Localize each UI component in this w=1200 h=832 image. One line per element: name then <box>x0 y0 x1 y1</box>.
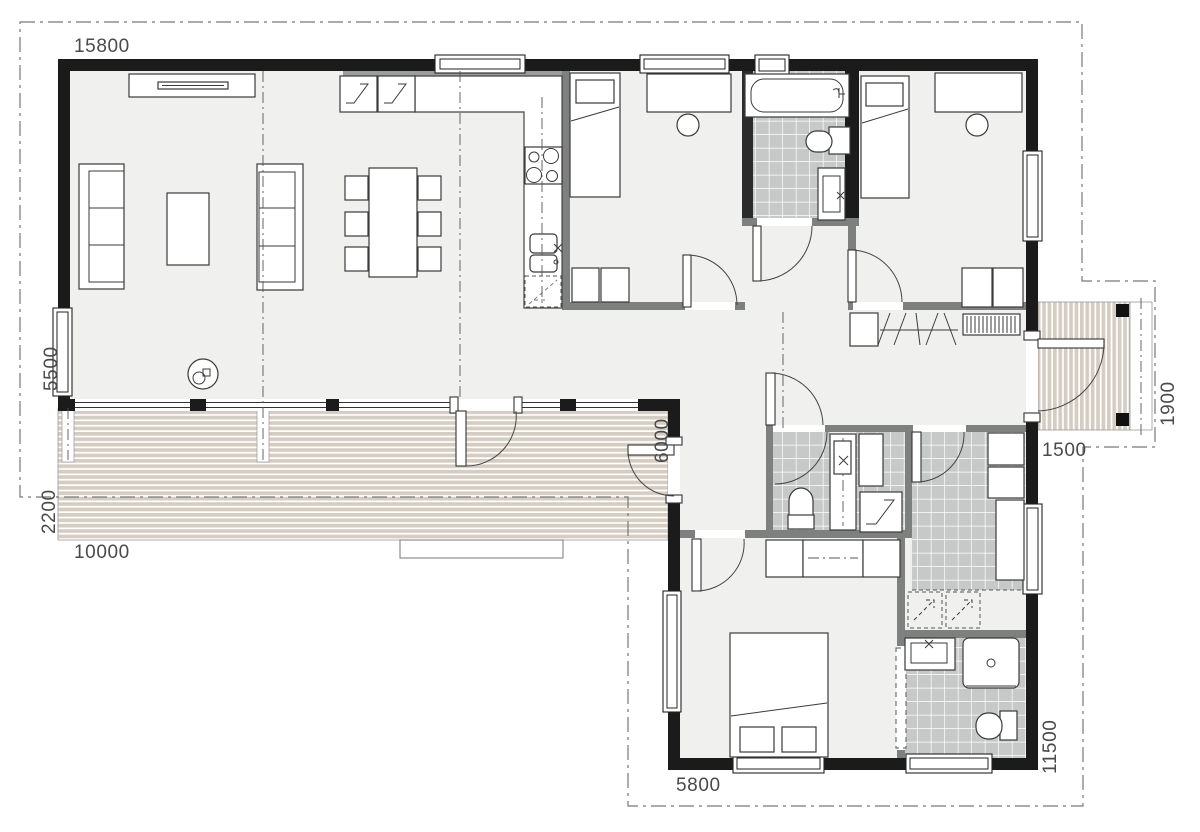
bed-2-pillow <box>866 83 903 106</box>
dim-left-height: 5500 <box>41 346 62 391</box>
hall-wardrobes <box>340 76 415 112</box>
dining-chair <box>418 247 441 271</box>
wardrobe-3 <box>863 540 900 577</box>
stove <box>525 147 562 184</box>
window-master-west <box>663 591 681 712</box>
shower <box>963 638 1019 688</box>
chair-1 <box>677 114 699 136</box>
window-south-2 <box>206 399 326 411</box>
toilet-bath2-bowl <box>976 713 1002 739</box>
wall-bath2-north <box>897 630 1026 638</box>
wall-wc-west <box>766 425 773 537</box>
tech-cabinet <box>859 434 883 486</box>
sofa-middle <box>257 164 303 290</box>
window-bed2-east <box>1023 151 1042 241</box>
dim-terrace-depth: 2200 <box>39 489 60 534</box>
coffee-table <box>167 193 209 265</box>
window-utility-east <box>1023 504 1042 594</box>
dining-set <box>345 168 441 277</box>
window-south-4 <box>522 399 560 411</box>
bed-1-pillow <box>576 80 614 103</box>
dining-chair <box>418 176 441 200</box>
opening-master-door <box>695 530 745 538</box>
window-bath1-north <box>755 55 789 75</box>
porch-post-top <box>1116 304 1129 317</box>
wall-tech-east <box>905 425 912 537</box>
water-heater <box>860 492 902 532</box>
opening-bath1-door <box>757 218 812 226</box>
wall-kitchen-bed1 <box>562 71 570 310</box>
opening-entry-door <box>1026 335 1038 417</box>
wardrobe-2 <box>803 540 863 577</box>
window-bath2-south <box>906 754 992 773</box>
porch-post-bottom <box>1116 413 1129 426</box>
window-south-1 <box>75 399 190 411</box>
pillow <box>782 727 816 752</box>
window-south-3 <box>339 399 452 411</box>
opening-bed1-door <box>685 302 735 310</box>
floor-plan: 15800 5500 2200 10000 6000 1500 1900 115… <box>0 0 1200 832</box>
bathtub <box>745 74 849 117</box>
dim-right-height: 11500 <box>1040 720 1061 774</box>
glazing-south-band <box>75 399 638 411</box>
window-bed1-north <box>640 55 729 73</box>
chair-2 <box>966 114 988 136</box>
pillow <box>740 727 774 752</box>
dim-porch-depth: 1500 <box>1042 440 1087 461</box>
dining-table <box>369 168 417 277</box>
dining-chair <box>345 212 368 236</box>
opening-utility-door <box>913 425 966 432</box>
toilet-wc-tank <box>788 515 814 529</box>
dining-chair <box>345 247 368 271</box>
terrace <box>58 408 668 558</box>
desk-1 <box>647 74 731 112</box>
bed2-cabinet <box>962 268 992 307</box>
window-kitchen-north <box>435 55 525 73</box>
dim-top-width: 15800 <box>74 36 130 57</box>
sofa-left <box>79 164 124 289</box>
desk-2 <box>935 73 1022 112</box>
opening-terrace-door <box>452 399 522 411</box>
dining-chair <box>418 212 441 236</box>
opening-wc-door <box>773 425 825 432</box>
fireplace <box>188 359 218 389</box>
wc-basin <box>834 441 851 474</box>
terrace-step <box>400 540 563 558</box>
dim-porch-width: 1900 <box>1158 381 1179 426</box>
window-south-5 <box>576 399 638 411</box>
porch-deck <box>1038 302 1130 430</box>
basin-bath1 <box>818 168 845 220</box>
bed2-cabinet <box>993 268 1023 307</box>
tv-bench <box>129 74 255 97</box>
bed1-cabinet <box>601 268 629 302</box>
dining-chair <box>345 176 368 200</box>
opening-bed2-door <box>853 302 903 310</box>
entry-cabinet <box>850 313 878 346</box>
bed1-cabinet <box>572 268 599 302</box>
entrance-porch <box>1038 298 1152 438</box>
wall-north <box>58 59 1038 71</box>
dim-wing-width: 5800 <box>676 775 721 796</box>
toilet-wc <box>789 488 813 517</box>
terrace-deck <box>58 408 668 540</box>
wardrobe-1 <box>766 540 803 577</box>
dim-terrace-width: 10000 <box>74 542 130 563</box>
dim-inner-width: 6000 <box>652 418 673 463</box>
entry-mat <box>963 314 1020 335</box>
